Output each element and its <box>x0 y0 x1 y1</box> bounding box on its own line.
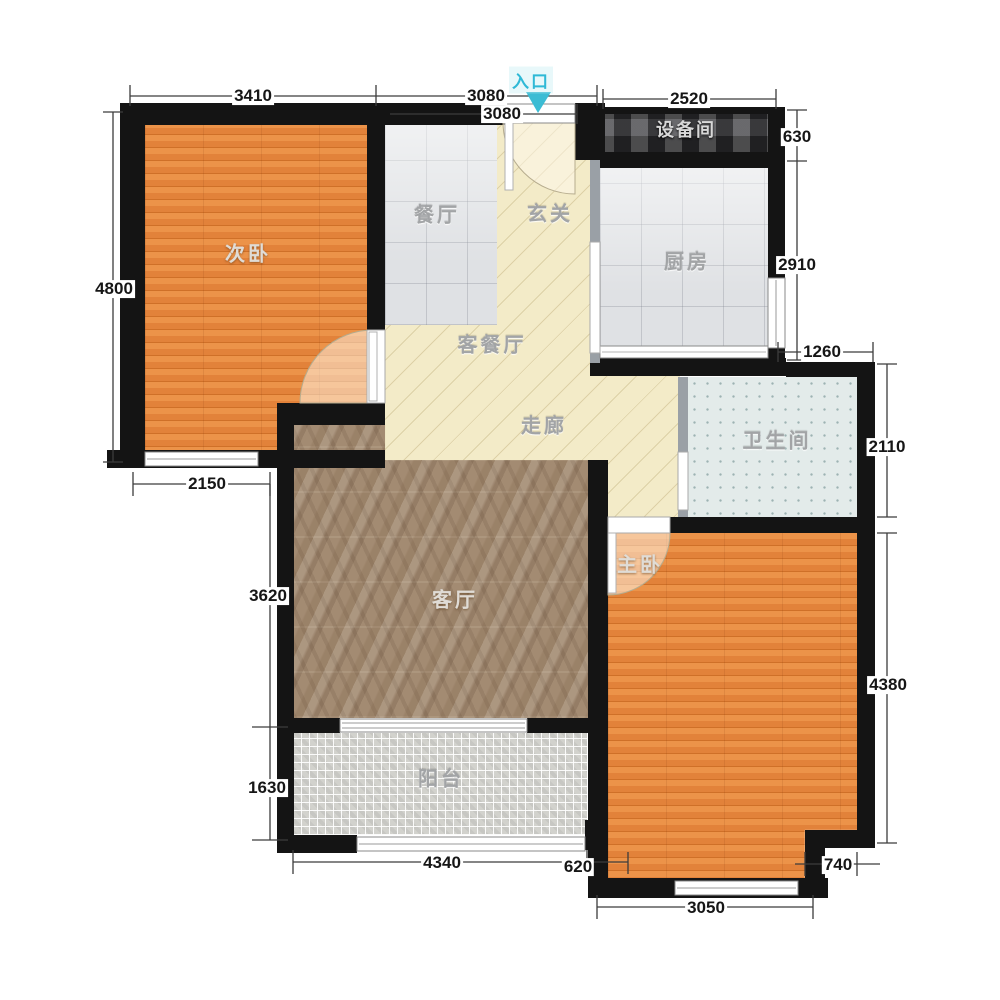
dim-4380: 4380 <box>867 676 909 694</box>
dim-2110: 2110 <box>867 438 908 456</box>
dim-3050: 3050 <box>685 899 727 917</box>
room-label-bathroom: 卫生间 <box>743 425 812 454</box>
wall-balcony-bottom-left <box>277 835 357 853</box>
dim-3080-inner: 3080 <box>481 105 523 123</box>
room-label-corridor: 走廊 <box>521 410 567 439</box>
wall-second-bedroom-right <box>367 122 385 330</box>
wall-corridor-corner <box>588 460 608 533</box>
kitchen-window <box>768 278 785 348</box>
wall-bath-left-upper <box>678 377 688 452</box>
balcony-window <box>357 837 585 851</box>
balcony-slider <box>340 719 527 732</box>
wall-second-bedroom-bottom <box>107 450 385 468</box>
room-label-equipment: 设备间 <box>656 116 716 142</box>
master-door-opening <box>608 517 670 533</box>
entrance-arrow-icon <box>526 92 551 113</box>
wall-kitchen-bottom <box>590 358 786 376</box>
entrance-label: 入口 <box>509 67 553 94</box>
wall-master-notch-h <box>805 830 875 848</box>
dim-630: 630 <box>781 128 813 146</box>
dim-2520: 2520 <box>668 90 710 108</box>
wall-bath-left-lower <box>678 510 688 517</box>
floor-plan: 次卧 餐厅 玄关 设备间 厨房 卫生间 客餐厅 走廊 客厅 主卧 阳台 入口 3… <box>0 0 1000 1000</box>
room-label-master-bedroom: 主卧 <box>617 549 663 578</box>
dim-3080-top: 3080 <box>465 87 507 105</box>
wall-master-bottom <box>588 878 828 898</box>
floor-master-bedroom <box>608 533 857 878</box>
wall-bath-bottom <box>670 517 857 533</box>
wall-balcony-bottom-right <box>585 820 608 850</box>
wall-balcony-divider-left <box>293 718 340 733</box>
dim-1260: 1260 <box>801 343 843 361</box>
room-label-dining: 餐厅 <box>414 199 460 228</box>
dim-4800: 4800 <box>93 280 135 298</box>
dim-620: 620 <box>562 858 594 876</box>
second-bedroom-door-leaf <box>369 332 377 401</box>
dim-2910: 2910 <box>776 256 818 274</box>
room-label-foyer: 玄关 <box>527 198 573 227</box>
wall-equip-bottom <box>590 152 785 168</box>
dim-3620: 3620 <box>247 587 289 605</box>
room-label-balcony: 阳台 <box>418 763 464 792</box>
wall-balcony-divider-right <box>527 718 588 733</box>
room-label-second-bedroom: 次卧 <box>225 238 271 267</box>
wall-kitchen-left-lower <box>590 353 600 363</box>
dim-1630: 1630 <box>246 779 288 797</box>
dim-740: 740 <box>822 856 854 874</box>
dim-3410: 3410 <box>232 87 274 105</box>
dim-4340: 4340 <box>421 854 463 872</box>
wall-top-left <box>120 103 505 125</box>
wall-living-top <box>277 403 385 425</box>
room-label-living-dining: 客餐厅 <box>458 329 527 358</box>
room-label-kitchen: 厨房 <box>664 246 710 275</box>
floor-living-room <box>293 425 588 718</box>
dim-2150: 2150 <box>186 475 228 493</box>
room-label-living-room: 客厅 <box>432 584 478 613</box>
second-bedroom-door-opening <box>367 330 385 403</box>
wall-kitchen-left-upper <box>590 160 600 242</box>
